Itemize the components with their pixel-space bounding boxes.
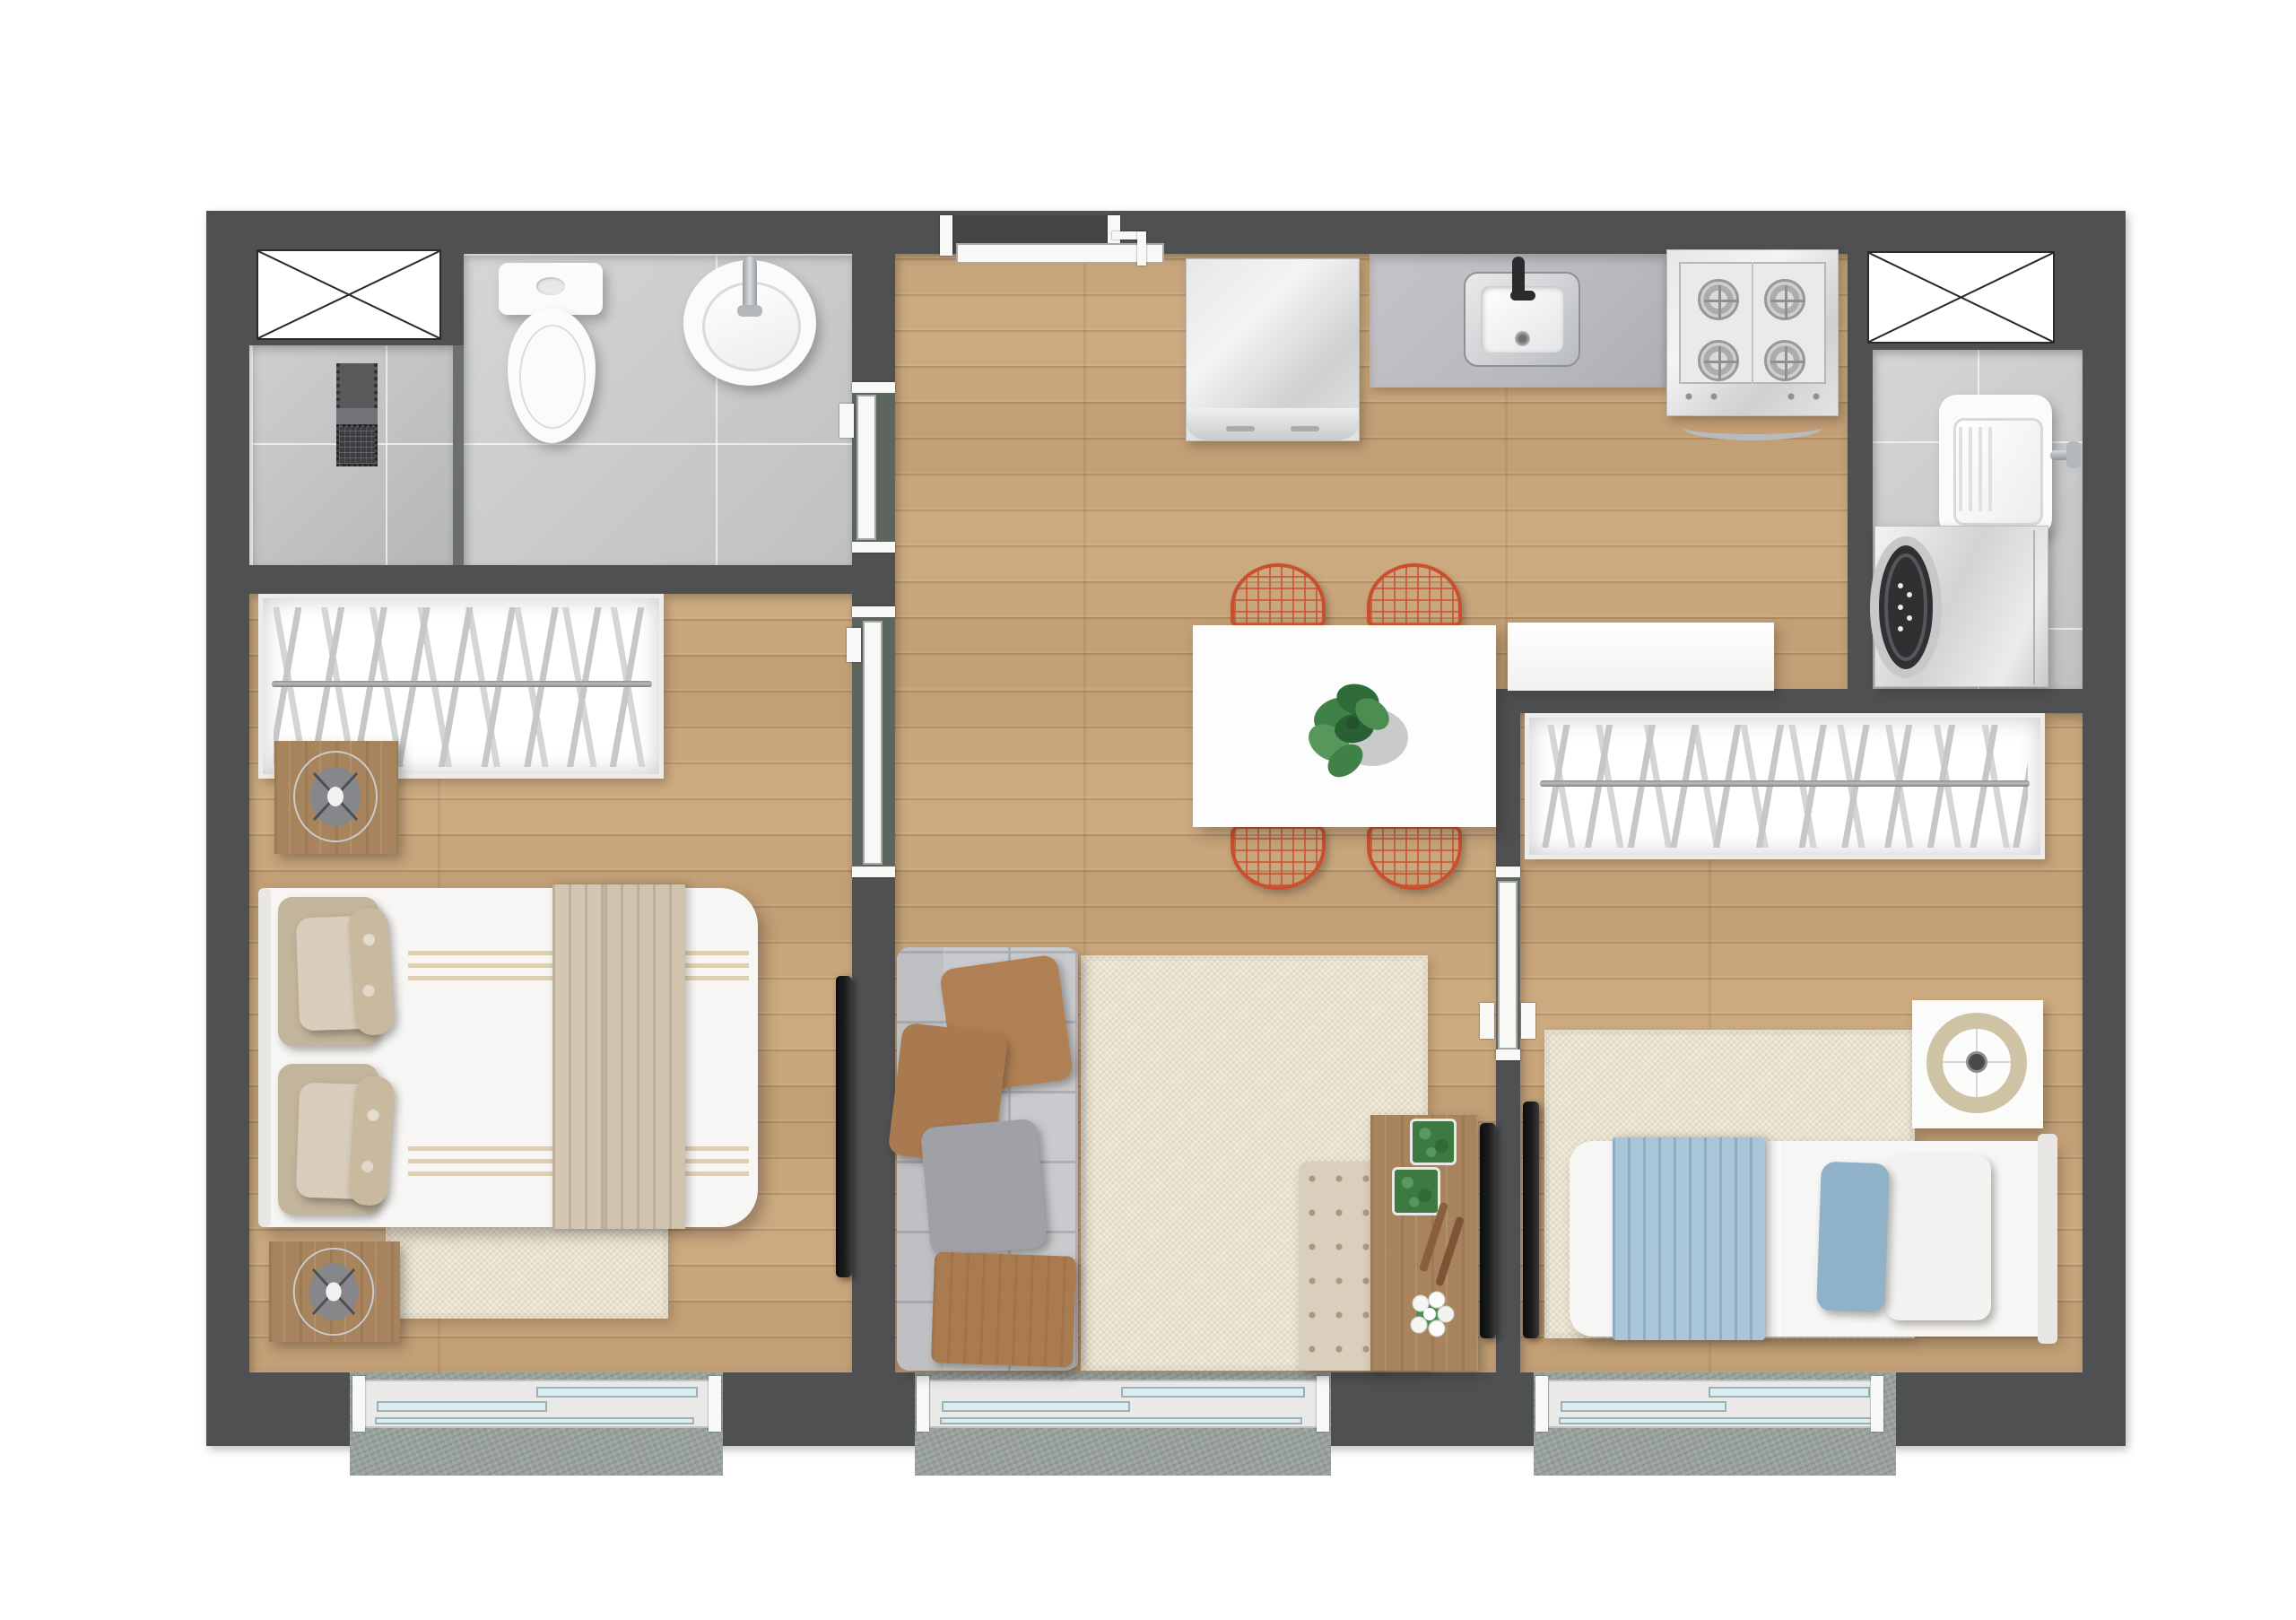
monstera-plant-icon [1290,660,1424,795]
blue-pillow [1816,1162,1890,1313]
bedroom1-door-handle [847,628,861,662]
bedroom1-door-jamb [852,606,895,617]
bedroom1-door-jamb [852,867,895,877]
floor-plan [0,0,2296,1620]
bedroom2-door-jamb [1496,867,1520,877]
planter-icon [1410,1119,1457,1165]
stove-burner [1764,279,1805,320]
tank-faucet-knob [2066,441,2081,468]
tv-stand [1370,1115,1478,1371]
wall-bathroom-south [249,565,895,594]
sofa-throw-brown [931,1251,1076,1367]
bedroom2-door-leaf [1498,881,1518,1050]
bathroom-door-handle [839,404,854,438]
toilet-icon [499,263,603,315]
stove-front-panel [1667,387,1838,406]
bedroom1-door-leaf [863,621,883,865]
tray-knob [1969,1054,1985,1070]
bedroom1-tv-icon [836,976,852,1277]
window-pane [377,1401,547,1412]
bedroom2-door-jamb [1496,1050,1520,1060]
window-jamb [917,1376,929,1432]
bedroom2-nightstand [1912,1000,2043,1128]
wall-laundry-west [1848,344,1873,713]
wall-shower-partition [453,345,464,565]
white-flower-icon [1394,1278,1474,1355]
stove-burner [1764,340,1805,381]
window-pane [942,1401,1130,1412]
shower-drain-icon [336,363,378,466]
bed-blanket [552,884,604,1229]
stove-burner [1698,279,1739,320]
fan-decor-icon [289,1247,378,1337]
washer-panel-line [2033,530,2035,684]
window-jamb [1317,1376,1329,1432]
bed-bolster-floral [347,907,396,1037]
duct-shaft-icon [257,249,441,340]
blue-blanket [1613,1137,1765,1340]
sink-drain [1515,331,1530,346]
window-jamb [352,1376,365,1432]
laundry-tank-icon [1939,395,2052,536]
sideboard-counter [1508,623,1774,691]
entry-door-jamb [940,215,952,256]
fan-decor-icon [291,750,380,843]
fridge-handle [1291,426,1319,431]
bedroom2-wardrobe [1525,713,2045,859]
wall-right [2083,211,2126,1446]
bathroom-door-jamb [852,542,895,553]
tufted-bench [1299,1162,1379,1371]
bedroom2-door-handle [1521,1003,1535,1039]
window-pane [1121,1387,1305,1398]
flush-button [536,277,565,295]
headboard [2038,1134,2057,1344]
faucet-icon [743,257,757,310]
bed-blanket [604,884,685,1229]
bed-bolster-floral [347,1076,396,1207]
white-pillow [1885,1155,1991,1320]
window-jamb [1535,1376,1548,1432]
entry-door-leaf [956,243,1164,264]
washer-door-icon [1870,536,1942,679]
faucet-head [737,305,762,317]
fridge-front [1187,408,1359,440]
window-pane [536,1387,698,1398]
window-pane [1709,1387,1870,1398]
wall-left [206,211,249,1446]
drain-mid [336,408,378,424]
window-pane [1561,1401,1726,1412]
window-track [375,1417,694,1424]
bathroom-door-jamb [852,382,895,393]
tank-washboard [1959,427,1995,511]
window-jamb [1871,1376,1883,1432]
single-bed [1570,1141,2054,1337]
hanger-rail [272,681,652,687]
drain-top [336,363,378,408]
sheet-fold [1765,1141,1781,1337]
window-jamb [709,1376,721,1432]
stove-burner [1698,340,1739,381]
entry-door-handle [1137,231,1146,266]
drain-grate [336,424,378,466]
window-track [1559,1417,1873,1424]
washing-machine-icon [1874,526,2048,687]
sofa-pillow-gray [920,1119,1048,1258]
duct-shaft-icon [1867,251,2055,344]
toilet-seat-line [519,325,586,429]
hanger-rail [1540,780,2030,787]
wall-top [206,211,2126,254]
bathroom-door-leaf [857,395,876,540]
bedroom2-tv-icon [1523,1102,1539,1338]
living-tv-icon [1480,1123,1496,1338]
wall-laundry-south [1496,689,2083,713]
tray-decor-icon [1926,1013,2027,1113]
stove-icon [1666,249,1839,416]
refrigerator-icon [1186,258,1360,441]
kitchen-faucet-head [1510,291,1535,300]
fridge-handle [1226,426,1255,431]
double-bed [258,888,758,1227]
planter-icon [1392,1167,1440,1215]
stove-handle [1683,414,1822,440]
bedroom2-door-handle [1480,1003,1494,1039]
window-track [940,1417,1302,1424]
headboard [258,888,271,1227]
stove-divider [1752,262,1753,384]
